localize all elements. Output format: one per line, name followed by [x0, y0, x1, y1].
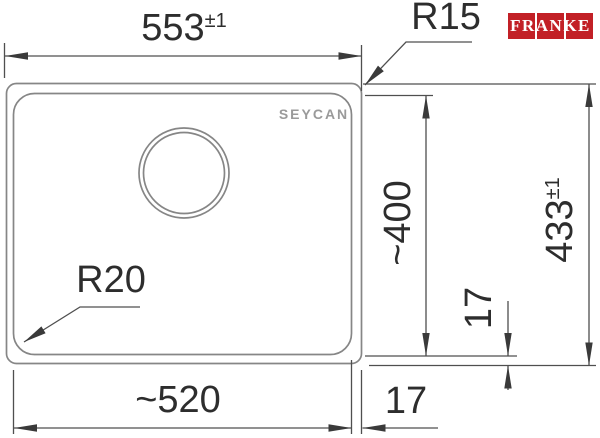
- arrow-r20-leader: [24, 326, 46, 342]
- arrow-400-top: [422, 96, 429, 119]
- drain-hole-inner-circle: [144, 133, 225, 214]
- arrow-17-bottom: [363, 424, 386, 431]
- dim-outer-width-tolerance: ±1: [205, 10, 227, 32]
- dim-label-outer-width: 553±1: [141, 9, 227, 47]
- logo-divider-1: [535, 13, 537, 39]
- sink-outer-outline: [7, 84, 362, 364]
- arrow-r15-leader: [365, 66, 384, 85]
- arrow-433-top: [585, 84, 592, 107]
- seycan-watermark: SEYCAN: [279, 106, 349, 122]
- arrow-520-right: [329, 424, 352, 431]
- arrow-433-bottom: [585, 343, 592, 366]
- arrow-520-left: [14, 424, 37, 431]
- logo-divider-2: [564, 13, 566, 39]
- dim-outer-depth-value: 433: [539, 199, 581, 262]
- dim-label-corner-radius-bottom-left: R20: [76, 261, 146, 299]
- leader-line-r20: [24, 307, 140, 342]
- dim-label-rim-gap-horizontal: 17: [385, 382, 427, 420]
- dim-label-corner-radius-top-right: R15: [411, 0, 481, 36]
- dim-label-inner-width: ~520: [135, 381, 221, 419]
- dim-label-outer-depth: 433±1: [541, 177, 579, 263]
- technical-drawing-canvas: 553±1 R15 R20 ~400 433±1 17 ~520 17 SEYC…: [0, 0, 600, 438]
- dim-outer-depth-tolerance: ±1: [542, 177, 564, 199]
- dim-label-inner-depth: ~400: [379, 180, 417, 266]
- arrow-17v-upper: [504, 333, 511, 356]
- drawing-linework: [0, 0, 600, 438]
- dim-outer-width-value: 553: [141, 7, 204, 49]
- drain-hole-outer-circle: [139, 128, 229, 218]
- dim-label-rim-gap-vertical: 17: [460, 287, 498, 329]
- arrow-553-left: [5, 52, 28, 59]
- arrow-553-right: [339, 52, 362, 59]
- arrow-17v-lower: [504, 366, 511, 389]
- arrow-400-bottom: [422, 333, 429, 356]
- franke-logo-text: FRANKE: [510, 16, 591, 36]
- franke-logo: FRANKE: [508, 13, 593, 39]
- leader-line-r15: [365, 42, 472, 85]
